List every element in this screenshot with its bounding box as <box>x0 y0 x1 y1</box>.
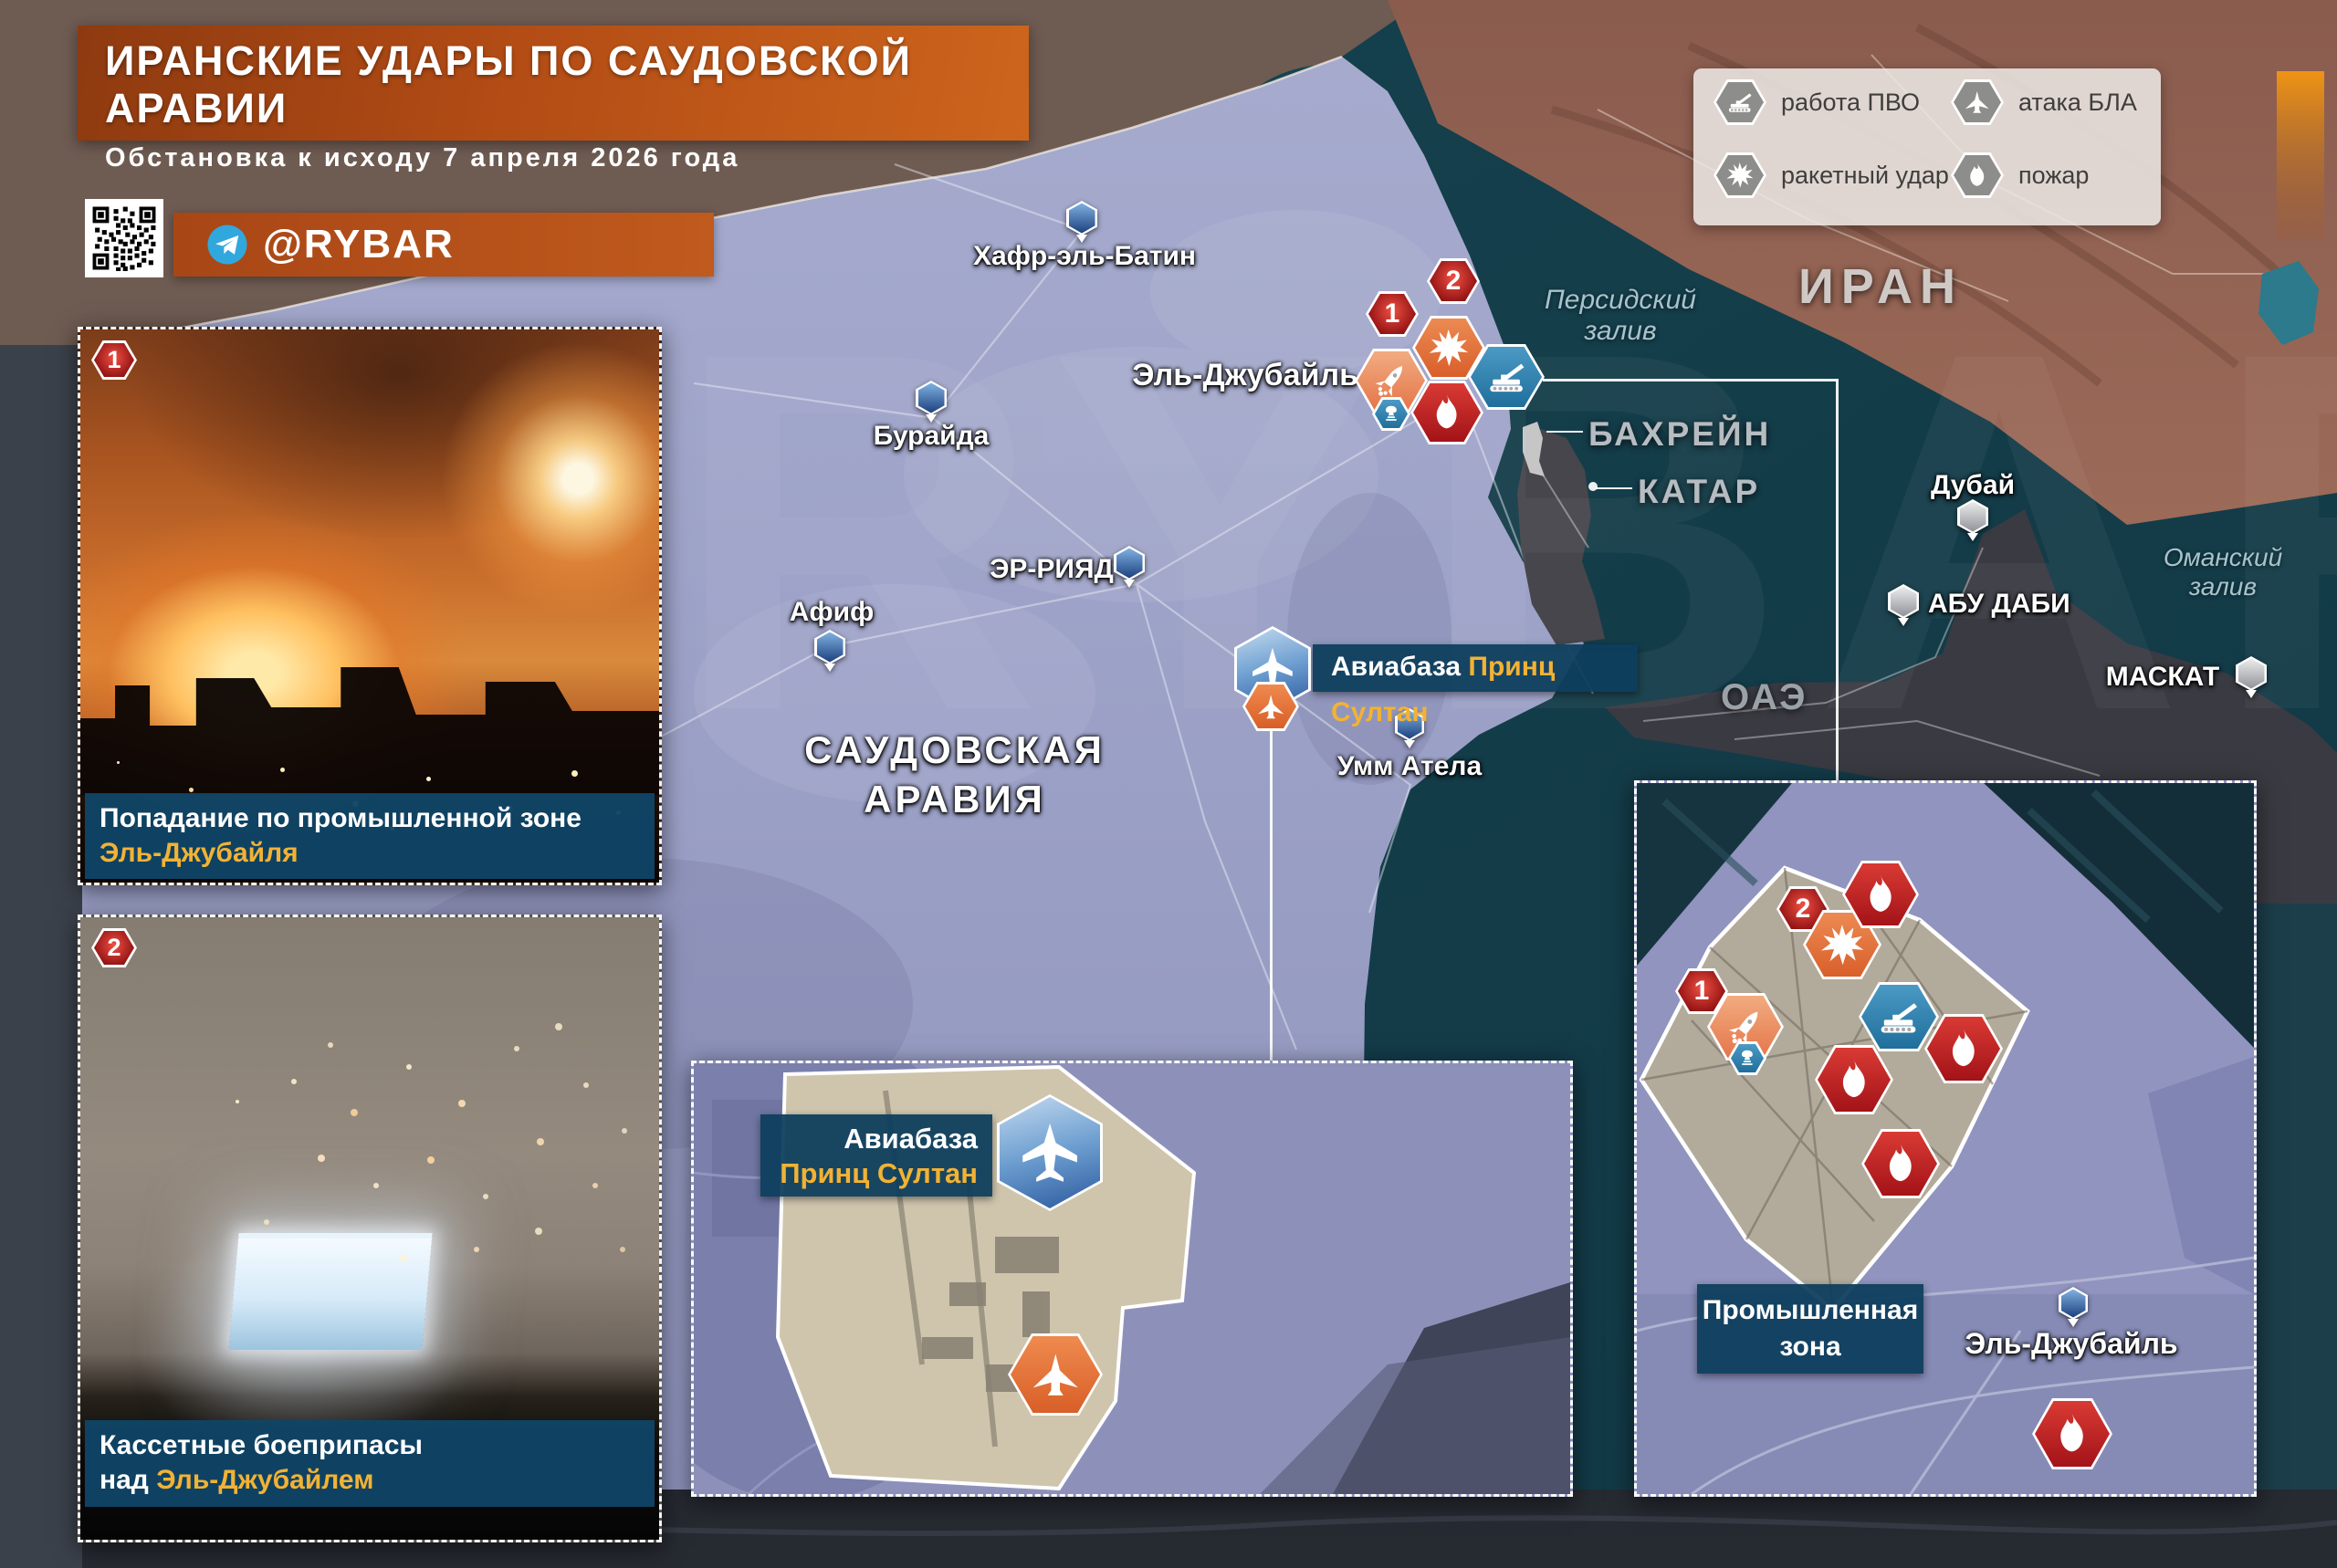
channel-banner: @RYBAR <box>173 213 714 277</box>
water-label-persian-gulf: Персидский залив <box>1515 285 1725 347</box>
industrial-zone-inset: Промышленная зона Эль-Джубайль 1 2 <box>1634 780 2257 1497</box>
city-pin-khafr <box>1066 201 1097 248</box>
city-label-abu-dhabi: АБУ ДАБИ <box>1928 589 2165 620</box>
city-label-muscat: МАСКАТ <box>2071 662 2254 693</box>
airbase-label-white: Авиабаза <box>1331 652 1461 682</box>
legend-label: пожар <box>2018 162 2089 190</box>
missile-strike-icon <box>1713 152 1766 198</box>
photo1-lights <box>117 761 120 764</box>
city-label-jubail: Эль-Джубайль <box>1066 358 1358 393</box>
airbase-inset-label-orange: Принц Султан <box>760 1156 978 1191</box>
legend-label: атака БЛА <box>2018 89 2137 117</box>
persian-gulf-line2: залив <box>1515 316 1725 347</box>
city-pin-muscat <box>2236 656 2267 704</box>
photo1-caption: Попадание по промышленной зоне Эль-Джуба… <box>85 793 655 879</box>
channel-name: @RYBAR <box>263 222 455 267</box>
industrial-zone-line2: зона <box>1697 1329 1923 1365</box>
country-label-uae: ОАЭ <box>1721 677 1808 718</box>
city-pin-dubai <box>1957 499 1988 547</box>
country-label-iran: ИРАН <box>1762 258 1999 315</box>
map-legend: работа ПВО атака БЛА ракетный удар пожар <box>1693 68 2161 225</box>
connector-cluster-to-inset <box>1543 379 1837 382</box>
photo2-caption-line2: над Эль-Джубайлем <box>100 1463 640 1498</box>
persian-gulf-line1: Персидский <box>1515 285 1725 316</box>
city-pin-buraydah <box>916 381 947 428</box>
city-pin-abu-dhabi <box>1888 584 1919 632</box>
city-label-dubai: Дубай <box>1900 470 2046 501</box>
photo1-caption-line2: Эль-Джубайля <box>100 836 640 871</box>
inset-city-pin-jubail <box>2059 1287 2088 1333</box>
airbase-inset-label: Авиабаза Принц Султан <box>760 1114 992 1197</box>
city-label-afif: Афиф <box>768 597 896 628</box>
bahrain-leader-line <box>1546 431 1583 433</box>
photo2-caption-highlight: Эль-Джубайлем <box>156 1465 373 1495</box>
air-defense-icon <box>1713 79 1766 125</box>
title-banner: ИРАНСКИЕ УДАРЫ ПО САУДОВСКОЙ АРАВИИ Обст… <box>78 26 1029 141</box>
industrial-zone-label: Промышленная зона <box>1697 1284 1923 1374</box>
fire-icon <box>1951 152 2004 198</box>
infographic-root: @RYBAR ИРАНСКИЕ УДАРЫ ПО САУДОВСКОЙ АРАВ… <box>0 0 2337 1568</box>
connector-airbase-to-inset <box>1270 719 1273 1062</box>
city-pin-afif <box>814 630 845 677</box>
legend-label: ракетный удар <box>1781 162 1949 190</box>
qatar-capital-dot <box>1588 482 1598 491</box>
photo2-caption-prefix: над <box>100 1465 156 1495</box>
industrial-zone-line1: Промышленная <box>1697 1292 1923 1329</box>
industrial-inset-terrain <box>1637 783 2254 1494</box>
connector-vertical-right <box>1836 379 1839 780</box>
country-label-qatar: КАТАР <box>1638 473 1760 511</box>
photo2-lit-building <box>228 1233 432 1350</box>
country-label-saudi: САУДОВСКАЯ АРАВИЯ <box>800 726 1110 824</box>
photo-inset-2: Кассетные боеприпасы над Эль-Джубайлем 2 <box>78 915 662 1542</box>
country-label-bahrain: БАХРЕЙН <box>1588 415 1771 454</box>
oman-gulf-line2: залив <box>2136 572 2310 601</box>
page-subtitle: Обстановка к исходу 7 апреля 2026 года <box>105 143 1029 173</box>
photo2-caption: Кассетные боеприпасы над Эль-Джубайлем <box>85 1420 655 1507</box>
country-label-saudi-line1: САУДОВСКАЯ <box>800 726 1110 775</box>
oman-gulf-line1: Оманский <box>2136 543 2310 572</box>
photo2-caption-line1: Кассетные боеприпасы <box>100 1428 640 1463</box>
airbase-label: Авиабаза Принц Султан <box>1313 644 1638 692</box>
country-label-saudi-line2: АРАВИЯ <box>800 775 1110 824</box>
airbase-inset-label-white: Авиабаза <box>760 1122 978 1156</box>
page-title: ИРАНСКИЕ УДАРЫ ПО САУДОВСКОЙ АРАВИИ <box>105 37 1029 132</box>
photo2-cluster-sparks <box>236 1100 239 1103</box>
legend-label: работа ПВО <box>1781 89 1920 117</box>
qatar-leader-line <box>1596 487 1632 489</box>
uav-attack-icon <box>1951 79 2004 125</box>
water-label-oman-gulf: Оманский залив <box>2136 543 2310 601</box>
city-pin-riyadh <box>1114 546 1145 593</box>
airbase-satellite-inset: Авиабаза Принц Султан <box>691 1061 1573 1497</box>
city-label-umm-atela: Умм Атела <box>1300 751 1519 782</box>
qr-code <box>85 199 163 277</box>
photo1-caption-line1: Попадание по промышленной зоне <box>100 801 640 836</box>
photo-inset-1: Попадание по промышленной зоне Эль-Джуба… <box>78 327 662 885</box>
telegram-icon <box>206 224 248 266</box>
